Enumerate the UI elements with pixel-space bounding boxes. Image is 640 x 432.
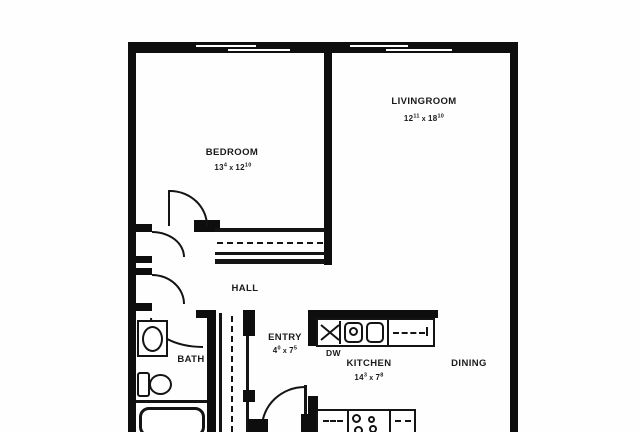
dim-separator: x <box>369 375 373 382</box>
stove-burner-icon <box>352 414 361 423</box>
dim-feet: 12 <box>404 114 414 123</box>
livingroom-window <box>350 45 408 47</box>
livingroom-label: LIVINGROOM <box>391 96 456 107</box>
entry-wall-stub <box>243 310 255 336</box>
bedroom-window <box>228 49 290 51</box>
counter-dash-mark <box>393 332 425 334</box>
hall-closet-wall-stub <box>134 256 152 263</box>
dishwasher-label: DW <box>326 348 341 358</box>
dim-inches: 10 <box>245 162 252 168</box>
linen-closet-left-wall <box>219 313 222 432</box>
dim-inches: 10 <box>437 113 444 119</box>
dishwasher-x-icon <box>319 321 341 344</box>
dim-inches: 3 <box>364 372 367 378</box>
bedroom-dimensions: 134x1210 <box>214 163 251 172</box>
entry-dimensions: 40x75 <box>273 346 297 355</box>
bath-partition-line <box>136 400 207 403</box>
bedroom-closet-rod <box>217 242 323 244</box>
dim-feet: 18 <box>428 114 438 123</box>
hall-label: HALL <box>232 283 259 294</box>
counter-dash-mark <box>395 420 411 422</box>
dim-inches: 5 <box>294 345 297 351</box>
dining-label: DINING <box>451 358 487 369</box>
bedroom-wall-stub <box>134 224 152 232</box>
bedroom-closet-bottom <box>215 259 325 264</box>
bath-sink-basin <box>142 326 163 352</box>
bathtub <box>139 407 205 432</box>
bath-wall-stub <box>134 303 152 311</box>
counter-divider <box>347 411 349 432</box>
sink-basin-icon <box>366 322 384 343</box>
stove-burner-icon <box>354 426 363 432</box>
counter-divider <box>389 411 391 432</box>
bedroom-door-arc <box>170 190 208 226</box>
dim-inches: 4 <box>224 162 227 168</box>
left-exterior-wall <box>128 42 136 432</box>
entry-label: ENTRY <box>268 332 302 343</box>
bedroom-window <box>196 45 256 47</box>
kitchen-top-wall <box>313 310 438 318</box>
dim-inches: 8 <box>380 372 383 378</box>
dim-separator: x <box>422 116 426 123</box>
counter-tick <box>426 327 428 336</box>
dim-feet: 14 <box>354 373 364 382</box>
bath-label: BATH <box>177 354 204 365</box>
toilet-bowl <box>149 374 172 395</box>
top-exterior-wall <box>128 42 518 53</box>
bedroom-closet-top <box>215 228 325 232</box>
kitchen-label: KITCHEN <box>346 358 391 369</box>
entry-wall-stub <box>243 390 255 402</box>
counter-divider <box>387 320 389 345</box>
dim-separator: x <box>229 165 233 172</box>
floor-plan: BEDROOM 134x1210 LIVINGROOM 1211x1810 HA… <box>0 0 640 432</box>
bath-right-wall <box>207 313 216 432</box>
hall-closet-door-arc <box>152 274 185 304</box>
hall-closet-door-arc <box>152 231 185 257</box>
stove-burner-icon <box>368 416 375 423</box>
bedroom-living-divider-wall <box>324 50 332 265</box>
bedroom-closet-shelf <box>215 252 325 255</box>
dim-inches: 0 <box>278 345 281 351</box>
dim-separator: x <box>283 348 287 355</box>
dim-inches: 11 <box>413 113 419 119</box>
right-exterior-wall <box>510 44 518 432</box>
hall-closet-wall-stub <box>134 268 152 275</box>
bedroom-label: BEDROOM <box>206 147 258 158</box>
linen-closet-sliding-door <box>231 316 233 432</box>
kitchen-dimensions: 143x78 <box>354 373 383 382</box>
sink-drain-icon <box>349 327 358 336</box>
livingroom-window <box>386 49 452 51</box>
livingroom-dimensions: 1211x1810 <box>404 114 444 123</box>
dim-feet: 13 <box>214 163 224 172</box>
dim-feet: 12 <box>235 163 245 172</box>
entry-bottom-wall-stub <box>248 419 268 432</box>
stove-burner-icon <box>369 425 377 432</box>
counter-dash-mark <box>323 420 343 422</box>
